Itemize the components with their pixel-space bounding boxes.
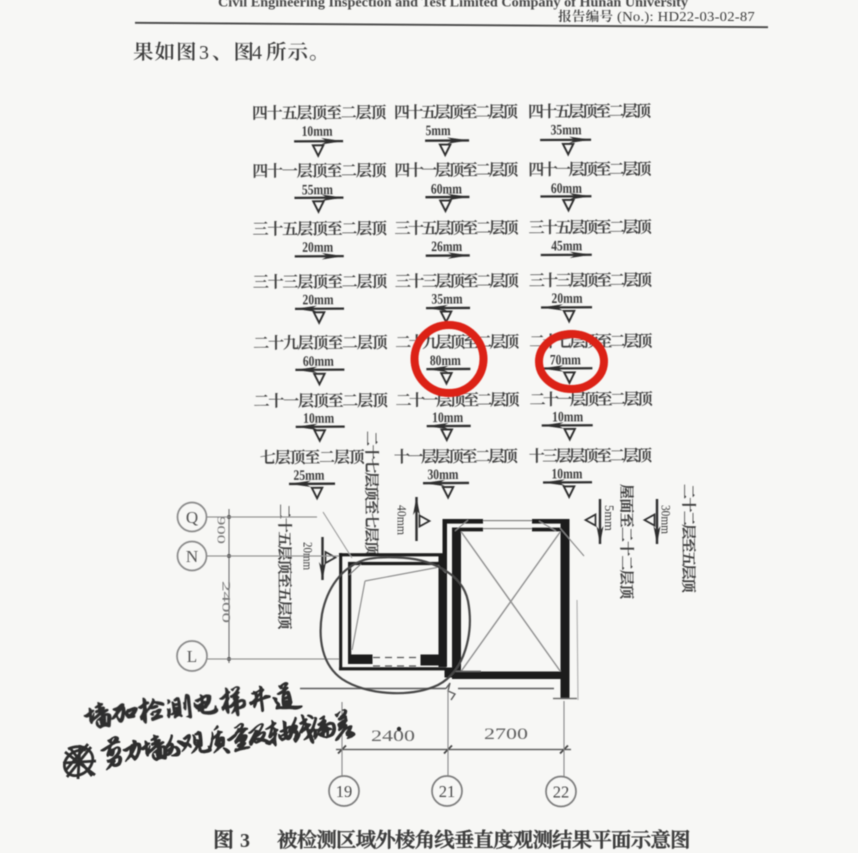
svg-text:19: 19 (336, 782, 353, 801)
svg-text:20mm: 20mm (302, 292, 333, 308)
svg-text:21: 21 (439, 782, 456, 801)
svg-text:2400: 2400 (371, 728, 415, 745)
svg-text:5mm: 5mm (602, 505, 616, 531)
svg-text:26mm: 26mm (431, 239, 462, 255)
svg-text:20mm: 20mm (551, 291, 582, 307)
svg-text:10mm: 10mm (432, 410, 463, 426)
svg-text:45mm: 45mm (551, 238, 582, 254)
svg-text:5mm: 5mm (426, 123, 451, 139)
svg-text:60mm: 60mm (431, 181, 462, 197)
svg-text:30mm: 30mm (659, 505, 673, 534)
svg-text:10mm: 10mm (552, 409, 583, 425)
svg-text:22: 22 (553, 783, 570, 802)
svg-text:35mm: 35mm (551, 122, 582, 138)
svg-text:3: 3 (240, 830, 250, 852)
svg-text:(No.): HD22-03-02-87: (No.): HD22-03-02-87 (617, 9, 755, 24)
svg-text:3: 3 (199, 42, 209, 64)
svg-text:Q: Q (186, 508, 198, 527)
svg-text:N: N (186, 547, 198, 566)
svg-text:10mm: 10mm (551, 466, 582, 482)
svg-text:40mm: 40mm (395, 505, 409, 535)
svg-text:2700: 2700 (484, 726, 528, 743)
svg-text:10mm: 10mm (303, 411, 334, 427)
svg-text:4: 4 (252, 42, 262, 64)
svg-text:10mm: 10mm (302, 124, 333, 140)
svg-text:70mm: 70mm (550, 352, 581, 368)
svg-text:20mm: 20mm (302, 240, 333, 256)
svg-text:L: L (187, 647, 197, 666)
svg-text:900: 900 (215, 516, 227, 544)
svg-text:60mm: 60mm (303, 354, 334, 370)
svg-text:2400: 2400 (220, 581, 232, 623)
